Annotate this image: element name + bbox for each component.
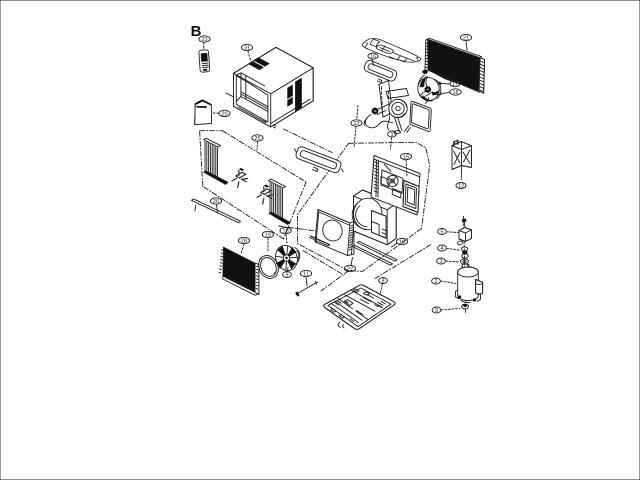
svg-text:20: 20 xyxy=(221,111,227,117)
svg-text:31: 31 xyxy=(244,46,250,52)
svg-text:22: 22 xyxy=(347,267,353,273)
svg-text:13: 13 xyxy=(353,121,359,127)
svg-text:18: 18 xyxy=(283,229,289,235)
svg-text:26: 26 xyxy=(213,199,219,205)
svg-text:17: 17 xyxy=(452,82,458,88)
svg-text:5: 5 xyxy=(440,230,443,236)
svg-text:2: 2 xyxy=(434,279,437,285)
svg-text:9: 9 xyxy=(285,273,288,279)
svg-text:12: 12 xyxy=(458,184,464,190)
svg-text:10: 10 xyxy=(399,240,405,246)
svg-text:9: 9 xyxy=(435,308,438,314)
svg-text:4: 4 xyxy=(440,246,443,252)
svg-text:1: 1 xyxy=(390,132,393,138)
svg-text:8: 8 xyxy=(381,279,384,285)
svg-text:3: 3 xyxy=(439,259,442,265)
svg-text:23: 23 xyxy=(201,37,207,43)
svg-text:16: 16 xyxy=(370,54,376,60)
svg-text:18: 18 xyxy=(452,90,458,96)
